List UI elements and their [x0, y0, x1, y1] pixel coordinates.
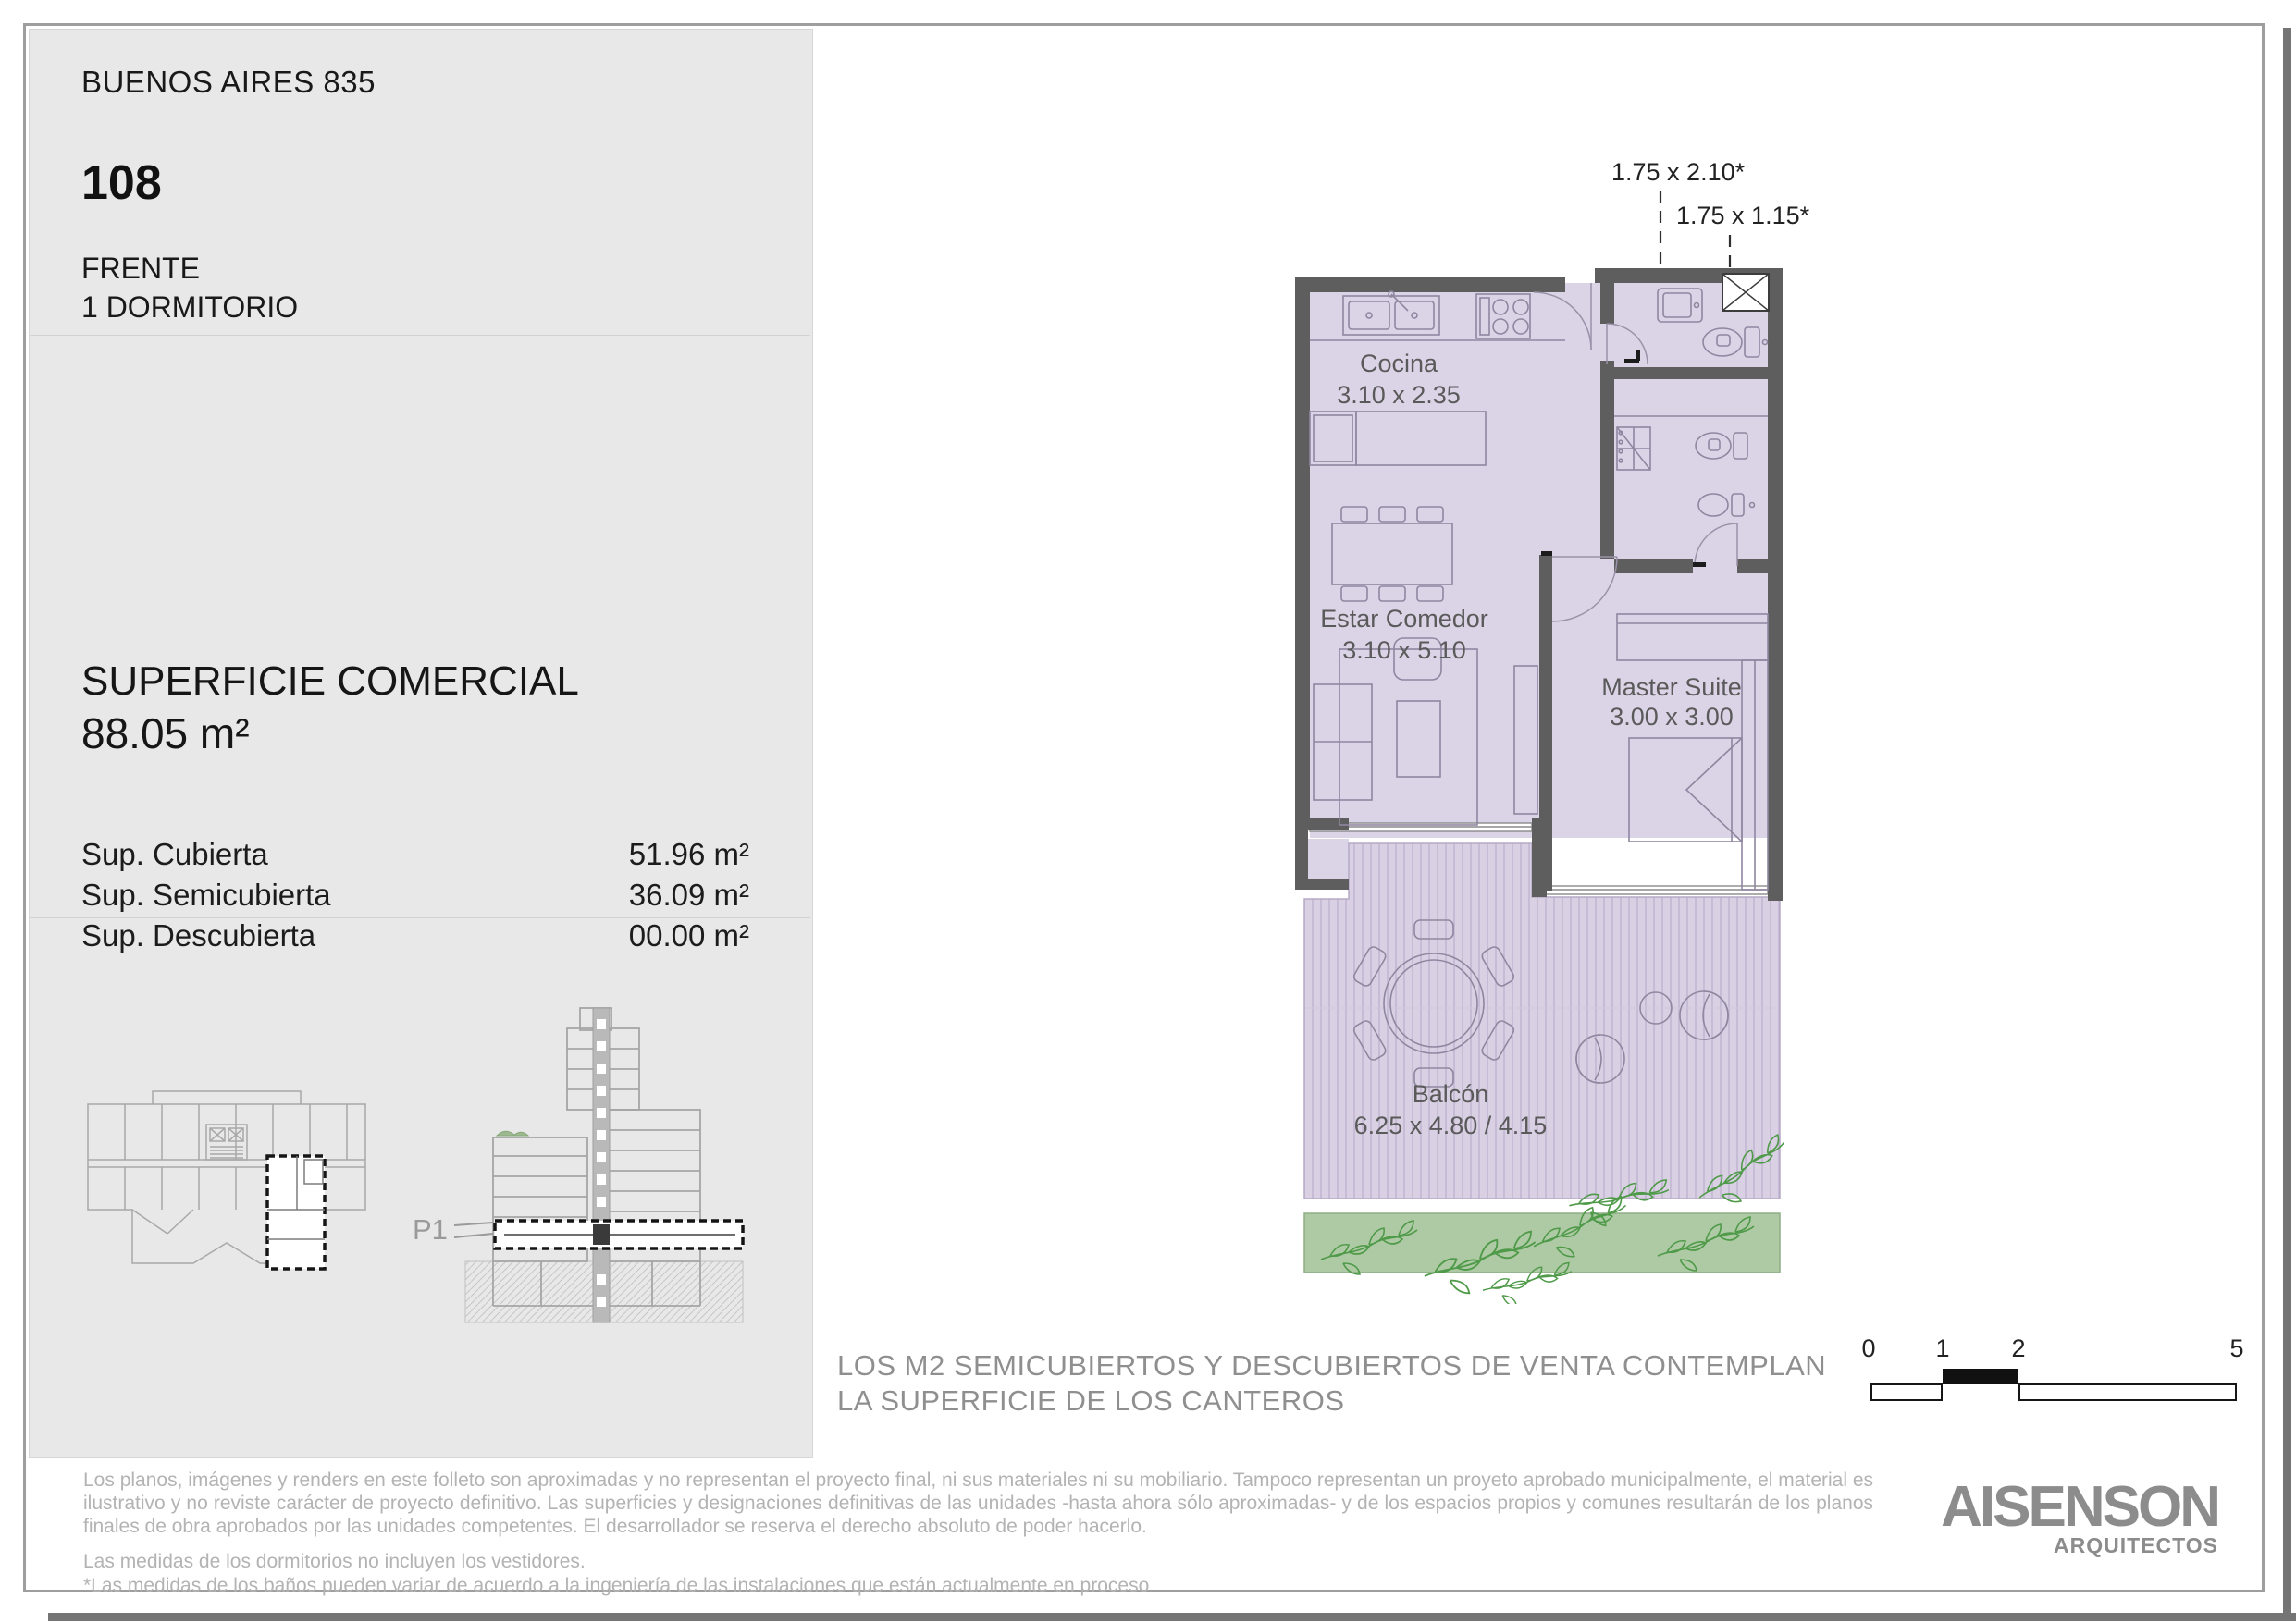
surface-row-label: Sup. Semicubierta [81, 878, 331, 913]
m2-note: LOS M2 SEMICUBIERTOS Y DESCUBIERTOS DE V… [837, 1348, 1826, 1419]
page-edge-shadow-right [2283, 28, 2291, 1620]
surface-title: SUPERFICIE COMERCIAL [81, 658, 579, 705]
m2-note-line1: LOS M2 SEMICUBIERTOS Y DESCUBIERTOS DE V… [837, 1348, 1826, 1383]
room-size-balcon: 6.25 x 4.80 / 4.15 [1354, 1112, 1548, 1139]
room-label-balcon: Balcón [1413, 1080, 1489, 1108]
logo-wordmark: AISENSON [1848, 1480, 2218, 1535]
scale-bar-segment-white-2 [2018, 1383, 2237, 1401]
room-size-master: 3.00 x 3.00 [1610, 703, 1734, 731]
surface-total: 88.05 m² [81, 708, 250, 758]
scale-tick-1: 1 [1924, 1334, 1961, 1363]
footer-note-dormitorios: Las medidas de los dormitorios no incluy… [83, 1550, 1149, 1574]
scale-tick-5: 5 [2218, 1334, 2255, 1363]
scale-bar-segment-black [1943, 1369, 2018, 1384]
surface-row-label: Sup. Descubierta [81, 918, 315, 953]
floor-plan: Cocina 3.10 x 2.35 Estar Comedor 3.10 x … [1295, 148, 1795, 1304]
duct-shaft [1722, 274, 1769, 311]
section-highlighted-floor [495, 1221, 743, 1248]
surface-row-label: Sup. Cubierta [81, 837, 268, 872]
page-edge-shadow-bottom [48, 1613, 2296, 1621]
scale-tick-0: 0 [1850, 1334, 1887, 1363]
surface-row-value: 36.09 m² [629, 878, 749, 913]
footer-disclaimer: Los planos, imágenes y renders en este f… [83, 1469, 1873, 1538]
unit-orientation: FRENTE [81, 252, 200, 286]
scale-tick-2: 2 [2000, 1334, 2037, 1363]
footer-disclaimer-notes: Las medidas de los dormitorios no incluy… [83, 1550, 1149, 1598]
room-size-cocina: 3.10 x 2.35 [1337, 381, 1461, 409]
surface-row: Sup. Cubierta 51.96 m² [81, 837, 749, 872]
surface-row: Sup. Semicubierta 36.09 m² [81, 878, 749, 913]
unit-number: 108 [81, 155, 162, 211]
panel-divider-1 [30, 335, 810, 336]
key-plan-highlighted-unit [267, 1156, 325, 1269]
room-size-estar: 3.10 x 5.10 [1342, 636, 1466, 664]
aisenson-logo: AISENSON ARQUITECTOS [1848, 1480, 2218, 1558]
footer-note-banos: *Las medidas de los baños pueden variar … [83, 1574, 1149, 1598]
room-label-master: Master Suite [1601, 673, 1742, 701]
surface-row-value: 00.00 m² [629, 918, 749, 953]
room-label-cocina: Cocina [1360, 350, 1438, 377]
key-plan-drawing [79, 1071, 375, 1282]
brochure-page: BUENOS AIRES 835 108 FRENTE 1 DORMITORIO… [0, 0, 2296, 1623]
building-section-drawing [412, 1001, 772, 1343]
surface-row-value: 51.96 m² [629, 837, 749, 872]
m2-note-line2: LA SUPERFICIE DE LOS CANTEROS [837, 1383, 1826, 1419]
scale-bar-segment-white-1 [1870, 1383, 1943, 1401]
project-title: BUENOS AIRES 835 [81, 65, 376, 100]
section-floor-label: P1 [413, 1213, 448, 1247]
unit-type: 1 DORMITORIO [81, 290, 298, 325]
surface-row: Sup. Descubierta 00.00 m² [81, 918, 749, 953]
room-label-estar: Estar Comedor [1320, 605, 1488, 633]
